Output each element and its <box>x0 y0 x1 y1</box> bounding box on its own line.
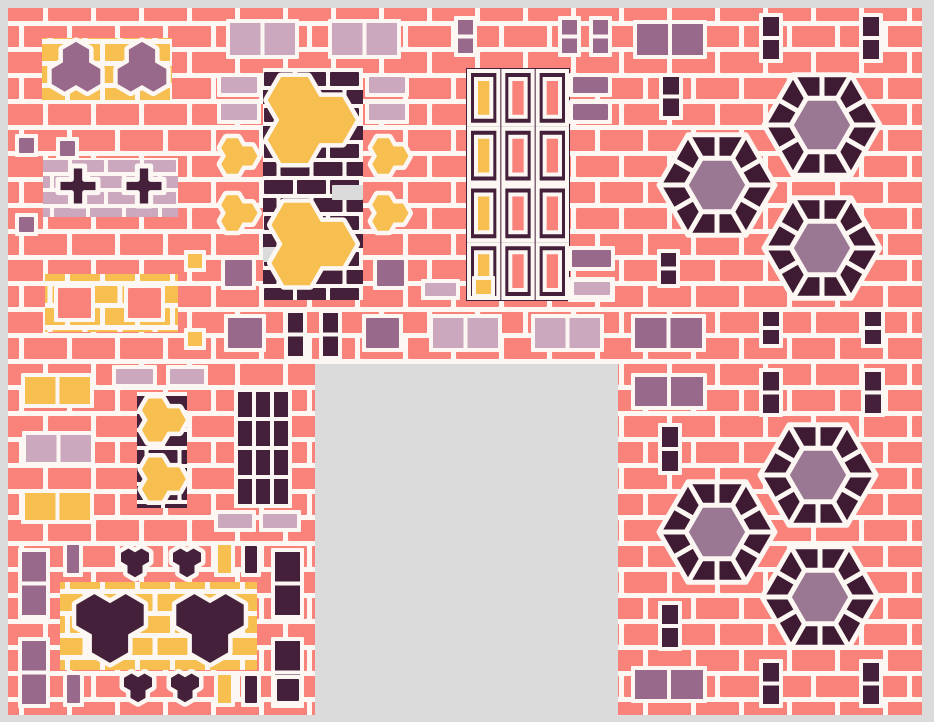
pair-shape <box>759 659 783 708</box>
pair-shape <box>861 368 885 417</box>
pair-shape <box>429 314 502 352</box>
trefoil-shape <box>142 399 186 442</box>
rect-shape <box>362 314 403 352</box>
trefoil-shape <box>118 42 167 92</box>
rect-shape <box>56 137 79 160</box>
bargrid-shape <box>234 388 292 508</box>
pair-shape <box>859 13 883 63</box>
rect-shape <box>224 314 266 352</box>
rect-shape <box>259 510 301 532</box>
pair-shape <box>759 13 783 63</box>
rect-shape <box>214 541 235 577</box>
pair-shape <box>454 16 477 57</box>
rect-shape <box>214 671 235 707</box>
rect-shape <box>365 100 409 124</box>
pair-shape <box>659 73 683 120</box>
trefoil-shape <box>372 195 408 231</box>
rect-shape <box>166 365 208 388</box>
rect-shape <box>273 675 303 705</box>
rect-shape <box>365 73 409 97</box>
trefoil-shape <box>221 195 257 231</box>
pair-shape <box>861 308 885 348</box>
pair-shape <box>558 16 581 57</box>
mosaic-root <box>0 0 934 722</box>
rect-shape <box>570 278 614 299</box>
rect-shape <box>569 73 612 97</box>
pair-shape <box>589 16 612 57</box>
rect-shape <box>63 541 83 577</box>
rect-shape <box>184 328 206 350</box>
pair-shape <box>658 423 682 475</box>
rect-shape <box>214 510 256 532</box>
pair-shape <box>21 373 94 408</box>
pair-shape <box>22 431 95 466</box>
pair-shape <box>328 19 401 59</box>
trefoil-shape <box>173 549 201 578</box>
pair-shape <box>631 314 706 352</box>
pair-shape <box>631 373 707 410</box>
rect-shape <box>112 365 157 388</box>
pair-shape <box>284 309 307 360</box>
pair-shape <box>657 249 680 288</box>
pair-shape <box>658 601 682 651</box>
empty-hole <box>315 364 618 715</box>
rect-shape <box>569 100 612 124</box>
rect-shape <box>241 672 261 707</box>
trefoil-shape <box>124 674 152 703</box>
pair-shape <box>271 548 304 619</box>
rect-shape <box>421 279 460 300</box>
pair-shape <box>21 489 94 524</box>
rect-shape <box>184 250 206 272</box>
trefoil-shape <box>221 138 257 174</box>
trefoil-shape <box>142 458 186 501</box>
rect-shape <box>373 256 408 290</box>
pair-shape <box>859 659 883 708</box>
pair-shape <box>759 308 783 348</box>
rect-shape <box>568 246 615 271</box>
pair-shape <box>18 637 50 708</box>
pair-shape <box>759 368 783 417</box>
framegrid-shape <box>466 68 570 301</box>
trefoil-shape <box>52 42 101 92</box>
pair-shape <box>631 666 707 703</box>
rect-shape <box>241 542 261 577</box>
rect-shape <box>54 284 95 322</box>
trefoil-shape <box>372 138 408 174</box>
rect-shape <box>221 256 256 290</box>
rect-shape <box>124 284 165 322</box>
pair-shape <box>226 19 299 59</box>
pair-shape <box>319 309 342 360</box>
pair-shape <box>531 314 604 352</box>
trefoil-shape <box>171 674 199 703</box>
rect-shape <box>332 185 363 200</box>
rect-shape <box>217 73 261 97</box>
rect-shape <box>472 276 495 298</box>
rect-shape <box>63 671 84 707</box>
rect-shape <box>217 100 261 124</box>
mosaic-svg <box>0 0 934 722</box>
rect-shape <box>15 134 38 157</box>
trefoil-shape <box>121 549 149 578</box>
pair-shape <box>633 20 707 59</box>
rect-shape <box>15 213 38 236</box>
mosaic-artwork <box>0 0 934 722</box>
pair-shape <box>18 548 50 619</box>
